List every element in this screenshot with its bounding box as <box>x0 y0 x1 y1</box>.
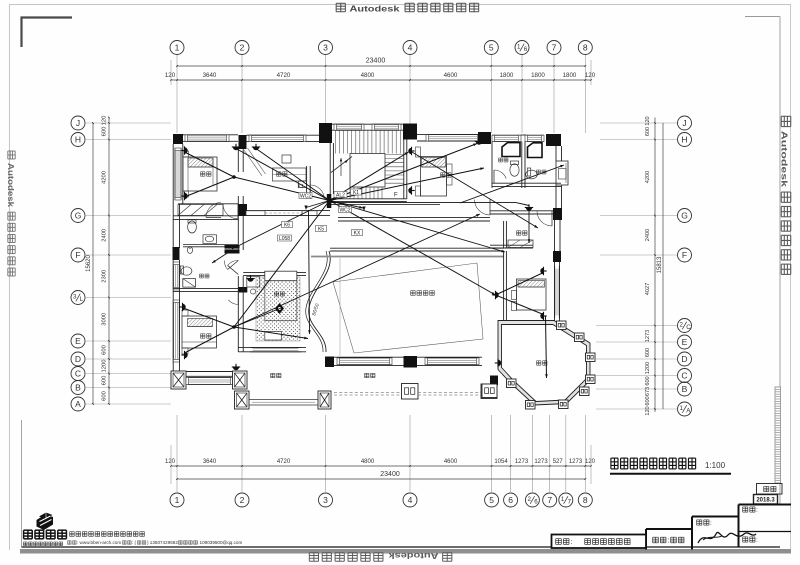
svg-text:C: C <box>75 369 81 379</box>
svg-text:1273: 1273 <box>645 330 651 342</box>
svg-text:F: F <box>394 193 398 199</box>
svg-text:120: 120 <box>165 72 176 79</box>
svg-text:1054: 1054 <box>494 459 508 465</box>
svg-text:4200: 4200 <box>102 171 108 184</box>
svg-text:120: 120 <box>585 459 596 465</box>
svg-text:D: D <box>75 354 81 364</box>
svg-text:600: 600 <box>102 127 108 137</box>
svg-text:120: 120 <box>102 116 108 126</box>
svg-text:4720: 4720 <box>277 459 291 465</box>
svg-text:) 13507429682: ) 13507429682 <box>147 540 178 545</box>
svg-text:3000: 3000 <box>102 313 108 326</box>
svg-text:H: H <box>681 135 687 145</box>
svg-text:2400: 2400 <box>645 229 651 241</box>
svg-text:1:100: 1:100 <box>705 461 726 470</box>
svg-text:Autodesk: Autodesk <box>388 551 438 561</box>
svg-text:2: 2 <box>240 495 245 505</box>
svg-text:5: 5 <box>489 43 494 53</box>
svg-text::: : <box>710 520 712 527</box>
svg-text:7: 7 <box>552 43 557 53</box>
svg-text:5: 5 <box>489 495 494 505</box>
svg-text:4600: 4600 <box>444 459 458 465</box>
svg-text:1800: 1800 <box>531 72 545 79</box>
svg-text:J: J <box>682 118 686 128</box>
svg-text:8: 8 <box>583 43 588 53</box>
svg-text:1800: 1800 <box>563 72 577 79</box>
svg-text:600: 600 <box>645 127 651 136</box>
svg-text:3640: 3640 <box>203 459 217 465</box>
svg-text:8: 8 <box>583 495 588 505</box>
svg-text:4800: 4800 <box>361 459 375 465</box>
svg-text:Autodesk: Autodesk <box>779 131 789 187</box>
svg-text:120: 120 <box>165 459 176 465</box>
svg-text:WC2: WC2 <box>300 193 311 199</box>
svg-text::: : <box>668 538 670 545</box>
svg-text:6: 6 <box>534 499 538 506</box>
svg-text:D: D <box>681 354 687 364</box>
svg-text:C: C <box>686 324 691 331</box>
svg-text:1800: 1800 <box>500 72 514 79</box>
svg-text:527: 527 <box>553 459 564 465</box>
svg-text:4720: 4720 <box>277 72 291 79</box>
svg-text:600: 600 <box>645 376 651 385</box>
svg-text::: : <box>571 539 573 546</box>
svg-text:1273: 1273 <box>515 459 529 465</box>
svg-text:600: 600 <box>645 396 651 405</box>
svg-text:F: F <box>75 250 80 260</box>
svg-text:3: 3 <box>323 43 328 53</box>
svg-text:A: A <box>75 399 81 409</box>
svg-text:15813: 15813 <box>657 256 663 273</box>
svg-text:6: 6 <box>524 46 528 53</box>
svg-text:WC2: WC2 <box>339 207 350 213</box>
svg-text:AL2: AL2 <box>336 192 345 198</box>
svg-text:673: 673 <box>645 387 651 396</box>
svg-text:4: 4 <box>408 43 413 53</box>
svg-text:1273: 1273 <box>569 459 583 465</box>
svg-text:: www.bben-arch.com: : www.bben-arch.com <box>77 540 121 545</box>
svg-text:G: G <box>681 211 688 221</box>
svg-text:2: 2 <box>240 43 245 53</box>
svg-text:120: 120 <box>645 116 651 125</box>
svg-text:23400: 23400 <box>380 471 400 478</box>
svg-text:C: C <box>681 371 687 381</box>
svg-text:1273: 1273 <box>534 459 548 465</box>
svg-text:23400: 23400 <box>366 58 386 65</box>
svg-text:2018.3: 2018.3 <box>756 498 775 504</box>
svg-text:4027: 4027 <box>645 283 651 295</box>
svg-text:6: 6 <box>508 495 513 505</box>
svg-text:1: 1 <box>175 43 180 53</box>
svg-text:3: 3 <box>323 495 328 505</box>
svg-text:F: F <box>682 250 687 260</box>
svg-text:J: J <box>76 118 80 128</box>
svg-text:Autodesk: Autodesk <box>6 163 15 208</box>
svg-text:B: B <box>682 384 688 394</box>
svg-text:3640: 3640 <box>203 72 217 79</box>
svg-text:G: G <box>75 211 82 221</box>
svg-text:: 109039500@qq.com: : 109039500@qq.com <box>197 540 242 545</box>
svg-text:K5: K5 <box>318 226 324 232</box>
svg-text:KX: KX <box>354 230 361 236</box>
svg-text:E: E <box>75 336 81 346</box>
svg-text:E: E <box>682 337 688 347</box>
svg-text:600: 600 <box>102 376 108 386</box>
svg-text:2400: 2400 <box>102 229 108 242</box>
svg-text:4800: 4800 <box>361 72 375 79</box>
svg-text:600: 600 <box>645 348 651 357</box>
svg-text:H: H <box>75 135 81 145</box>
svg-text:1: 1 <box>175 495 180 505</box>
svg-text:4: 4 <box>408 495 413 505</box>
svg-text:1200: 1200 <box>645 362 651 374</box>
svg-text:600: 600 <box>102 345 108 355</box>
svg-text:120: 120 <box>645 406 651 415</box>
svg-text:K1: K1 <box>298 184 304 190</box>
svg-text:Autodesk: Autodesk <box>350 4 400 14</box>
svg-text:L058: L058 <box>279 236 290 242</box>
svg-text:600: 600 <box>102 391 108 401</box>
svg-text:120: 120 <box>585 72 596 79</box>
svg-text:2300: 2300 <box>102 270 108 283</box>
svg-text:7: 7 <box>568 499 572 506</box>
svg-text:7: 7 <box>547 495 552 505</box>
svg-text:B: B <box>75 383 81 393</box>
svg-text:: (: : ( <box>132 540 137 545</box>
svg-text:L: L <box>80 296 84 303</box>
svg-text:K6: K6 <box>284 222 290 228</box>
svg-text::: : <box>756 537 758 544</box>
svg-text:K1: K1 <box>353 190 359 196</box>
svg-text:4200: 4200 <box>645 171 651 183</box>
svg-text::: : <box>756 507 758 514</box>
svg-text:15620: 15620 <box>86 254 92 271</box>
svg-text:1200: 1200 <box>102 360 108 373</box>
svg-text:4600: 4600 <box>444 72 458 79</box>
